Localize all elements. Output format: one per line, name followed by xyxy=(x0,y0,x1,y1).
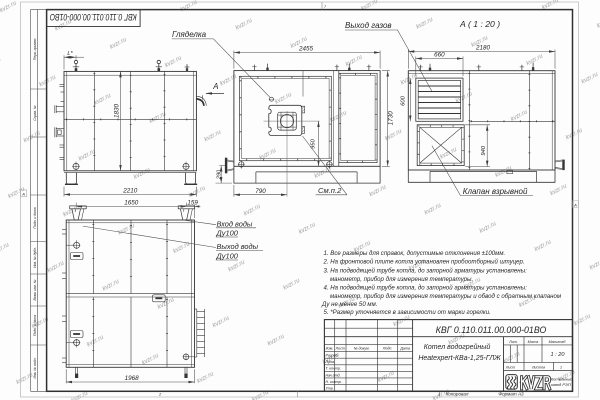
svg-text:940: 940 xyxy=(481,145,487,155)
svg-text:Пров.: Пров. xyxy=(326,360,335,364)
svg-text:Изм.: Изм. xyxy=(326,347,334,351)
svg-text:манометр, прибор для измерения: манометр, прибор для измерения температу… xyxy=(330,293,562,300)
svg-text:завод РЭП: завод РЭП xyxy=(550,382,571,387)
svg-text:Гляделка: Гляделка xyxy=(172,30,207,39)
svg-text:1 : 20: 1 : 20 xyxy=(551,352,566,358)
svg-text:Взам. инв. №: Взам. инв. № xyxy=(33,279,37,300)
svg-text:КВГ 0.110.011.00.000-01ВО: КВГ 0.110.011.00.000-01ВО xyxy=(436,325,547,335)
svg-text:1830: 1830 xyxy=(114,104,121,119)
svg-text:А: А xyxy=(573,202,577,207)
svg-text:790: 790 xyxy=(255,188,266,195)
svg-text:600: 600 xyxy=(401,95,407,105)
svg-text:Ду100: Ду100 xyxy=(216,229,239,238)
svg-text:Справ. №: Справ. № xyxy=(33,105,37,121)
svg-text:5. *Размер уточняется в зависи: 5. *Размер уточняется в зависимости от м… xyxy=(324,309,491,316)
svg-text:Подп. и дата: Подп. и дата xyxy=(33,315,37,336)
svg-text:Н. контр.: Н. контр. xyxy=(326,380,342,384)
svg-text:Ду100: Ду100 xyxy=(216,252,239,261)
svg-text:Клапан взрывной: Клапан взрывной xyxy=(463,187,528,196)
svg-text:Подп.: Подп. xyxy=(383,347,393,351)
svg-text:1650: 1650 xyxy=(124,200,139,207)
svg-text:950: 950 xyxy=(311,138,317,148)
svg-text:Инв. № подл.: Инв. № подл. xyxy=(33,357,37,378)
svg-text:Перв. примен.: Перв. примен. xyxy=(33,38,37,61)
svg-text:КВГ 0.110.011.00.000-01ВО: КВГ 0.110.011.00.000-01ВО xyxy=(50,12,137,22)
svg-text:2180: 2180 xyxy=(475,45,491,52)
svg-text:Выход воды: Выход воды xyxy=(217,242,259,251)
svg-text:159: 159 xyxy=(187,200,198,207)
svg-text:Котельный: Котельный xyxy=(551,377,574,382)
svg-text:А: А xyxy=(212,82,218,91)
svg-text:Инв. № дубл.: Инв. № дубл. xyxy=(33,247,37,268)
svg-text:Нач.отд.: Нач.отд. xyxy=(326,373,341,377)
svg-text:2210: 2210 xyxy=(122,188,138,195)
svg-text:290: 290 xyxy=(216,169,222,180)
svg-text:манометр, прибор для измерения: манометр, прибор для измерения температу… xyxy=(330,276,473,283)
svg-text:3. На подводящей трубе котла,: 3. На подводящей трубе котла, до запорно… xyxy=(324,267,528,274)
svg-text:Листов: Листов xyxy=(531,366,545,370)
svg-text:Подп. и дата: Подп. и дата xyxy=(33,207,37,228)
svg-text:Лист: Лист xyxy=(505,366,515,370)
svg-text:Дата: Дата xyxy=(399,347,409,351)
svg-text:Лит.: Лит. xyxy=(508,340,517,344)
svg-text:Ду не менее 50 мм.: Ду не менее 50 мм. xyxy=(321,301,377,308)
svg-text:А ( 1 : 20 ): А ( 1 : 20 ) xyxy=(459,19,500,29)
svg-text:4. На подводящей трубе котла,: 4. На подводящей трубе котла, до запорно… xyxy=(324,285,528,292)
svg-text:1: 1 xyxy=(560,366,562,370)
svg-text:Выход газов: Выход газов xyxy=(345,21,392,30)
svg-text:2. На фронтовой плите котла ус: 2. На фронтовой плите котла установлен п… xyxy=(323,259,525,266)
svg-text:Heatexpert-КВа-1,25-ГЛЖ: Heatexpert-КВа-1,25-ГЛЖ xyxy=(418,355,501,362)
svg-text:1. Все размеры для справок, до: 1. Все размеры для справок, допустимые о… xyxy=(324,250,506,257)
svg-text:Формат А3: Формат А3 xyxy=(498,391,524,396)
svg-text:Лист: Лист xyxy=(335,347,345,351)
svg-text:1730: 1730 xyxy=(388,111,395,126)
svg-text:Вход воды: Вход воды xyxy=(217,219,253,228)
svg-text:1968: 1968 xyxy=(125,375,140,382)
svg-text:Утв.: Утв. xyxy=(326,386,334,390)
svg-text:№ докум.: № докум. xyxy=(354,347,370,351)
svg-text:Масса: Масса xyxy=(528,340,539,344)
svg-text:Разраб.: Разраб. xyxy=(326,354,339,358)
svg-text:2455: 2455 xyxy=(298,46,314,53)
svg-text:Копировал: Копировал xyxy=(446,391,469,396)
svg-text:1: 1 xyxy=(438,391,441,396)
svg-text:А: А xyxy=(21,191,25,196)
svg-text:Т. контр.: Т. контр. xyxy=(326,367,342,371)
svg-text:L*: L* xyxy=(67,51,73,57)
svg-text:660: 660 xyxy=(434,52,445,59)
svg-text:Котел водогрейный: Котел водогрейный xyxy=(424,343,491,351)
svg-text:См.п.2: См.п.2 xyxy=(318,186,342,195)
svg-text:Масштаб: Масштаб xyxy=(549,340,567,344)
